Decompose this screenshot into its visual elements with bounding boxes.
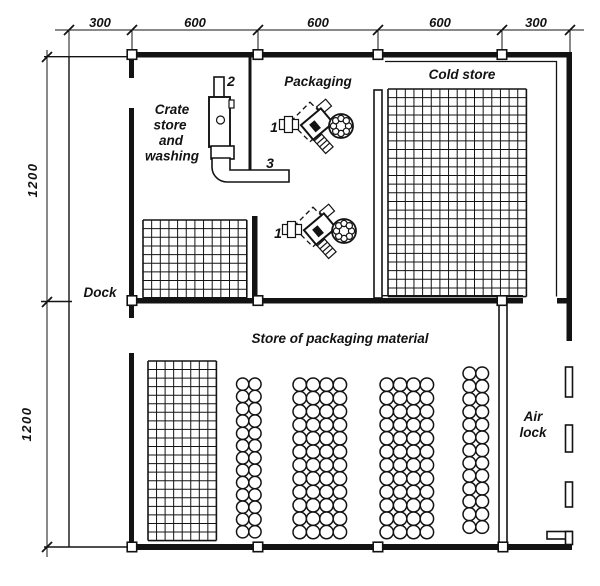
wall-partition-lower	[252, 216, 258, 298]
equipment-label-1-upper: 1	[270, 119, 278, 135]
wall-cold-store-west	[374, 90, 382, 298]
dim-label-300-right: 300	[525, 15, 547, 30]
cold-store-pallet-grid	[388, 89, 526, 297]
dim-label-600-3: 600	[429, 15, 451, 30]
equipment-label-2: 2	[226, 73, 235, 89]
dock-platform-lines	[41, 57, 129, 547]
room-label-air-lock-line2: lock	[519, 425, 548, 440]
wall-air-lock-west	[499, 303, 507, 544]
room-label-crate-store-line3: and	[159, 133, 184, 148]
equipment-label-3: 3	[266, 155, 274, 171]
crate-washer-machine	[209, 77, 234, 159]
room-label-crate-store-line2: store	[153, 118, 187, 133]
floor-plan-page: 300 600 600 600 300 1200 1200	[0, 0, 600, 586]
room-label-store-material: Store of packaging material	[251, 331, 428, 346]
dim-label-600-2: 600	[307, 15, 329, 30]
roll-stack-1	[237, 378, 262, 538]
equipment-label-1-lower: 1	[274, 225, 282, 241]
roll-stacks	[237, 367, 489, 539]
room-label-packaging: Packaging	[284, 74, 352, 89]
wall-right-door-seg1	[566, 367, 573, 397]
roll-stack-3	[380, 378, 434, 539]
wall-right-door-seg3	[566, 482, 573, 507]
dim-label-1200-lower: 1200	[19, 407, 34, 442]
wall-partition-upper	[249, 57, 252, 171]
packaging-machine-upper	[280, 99, 354, 153]
wall-right-door-seg2	[566, 425, 573, 452]
roll-stack-4	[463, 367, 489, 533]
packaging-material-pallet-grid	[148, 361, 216, 541]
wall-right-solid	[567, 52, 573, 341]
room-label-crate-store-line1: Crate	[155, 102, 190, 117]
wall-middle	[129, 298, 523, 304]
room-label-dock: Dock	[83, 285, 118, 300]
dim-label-300-left: 300	[89, 15, 111, 30]
wall-left-seg2	[129, 108, 134, 298]
crate-store-pallet-grid	[143, 220, 247, 298]
cold-store-lining	[385, 62, 557, 297]
room-label-crate-store-line4: washing	[145, 149, 200, 164]
wall-left-seg4	[129, 353, 134, 545]
room-label-cold-store: Cold store	[429, 67, 496, 82]
dim-label-600-1: 600	[184, 15, 206, 30]
wall-right-corner	[566, 532, 573, 545]
packaging-machine-lower	[283, 204, 357, 258]
floor-plan-drawing: 300 600 600 600 300 1200 1200	[0, 0, 600, 586]
room-label-air-lock-line1: Air	[523, 409, 544, 424]
roll-stack-2	[293, 378, 347, 539]
dim-label-1200-upper: 1200	[25, 163, 40, 198]
